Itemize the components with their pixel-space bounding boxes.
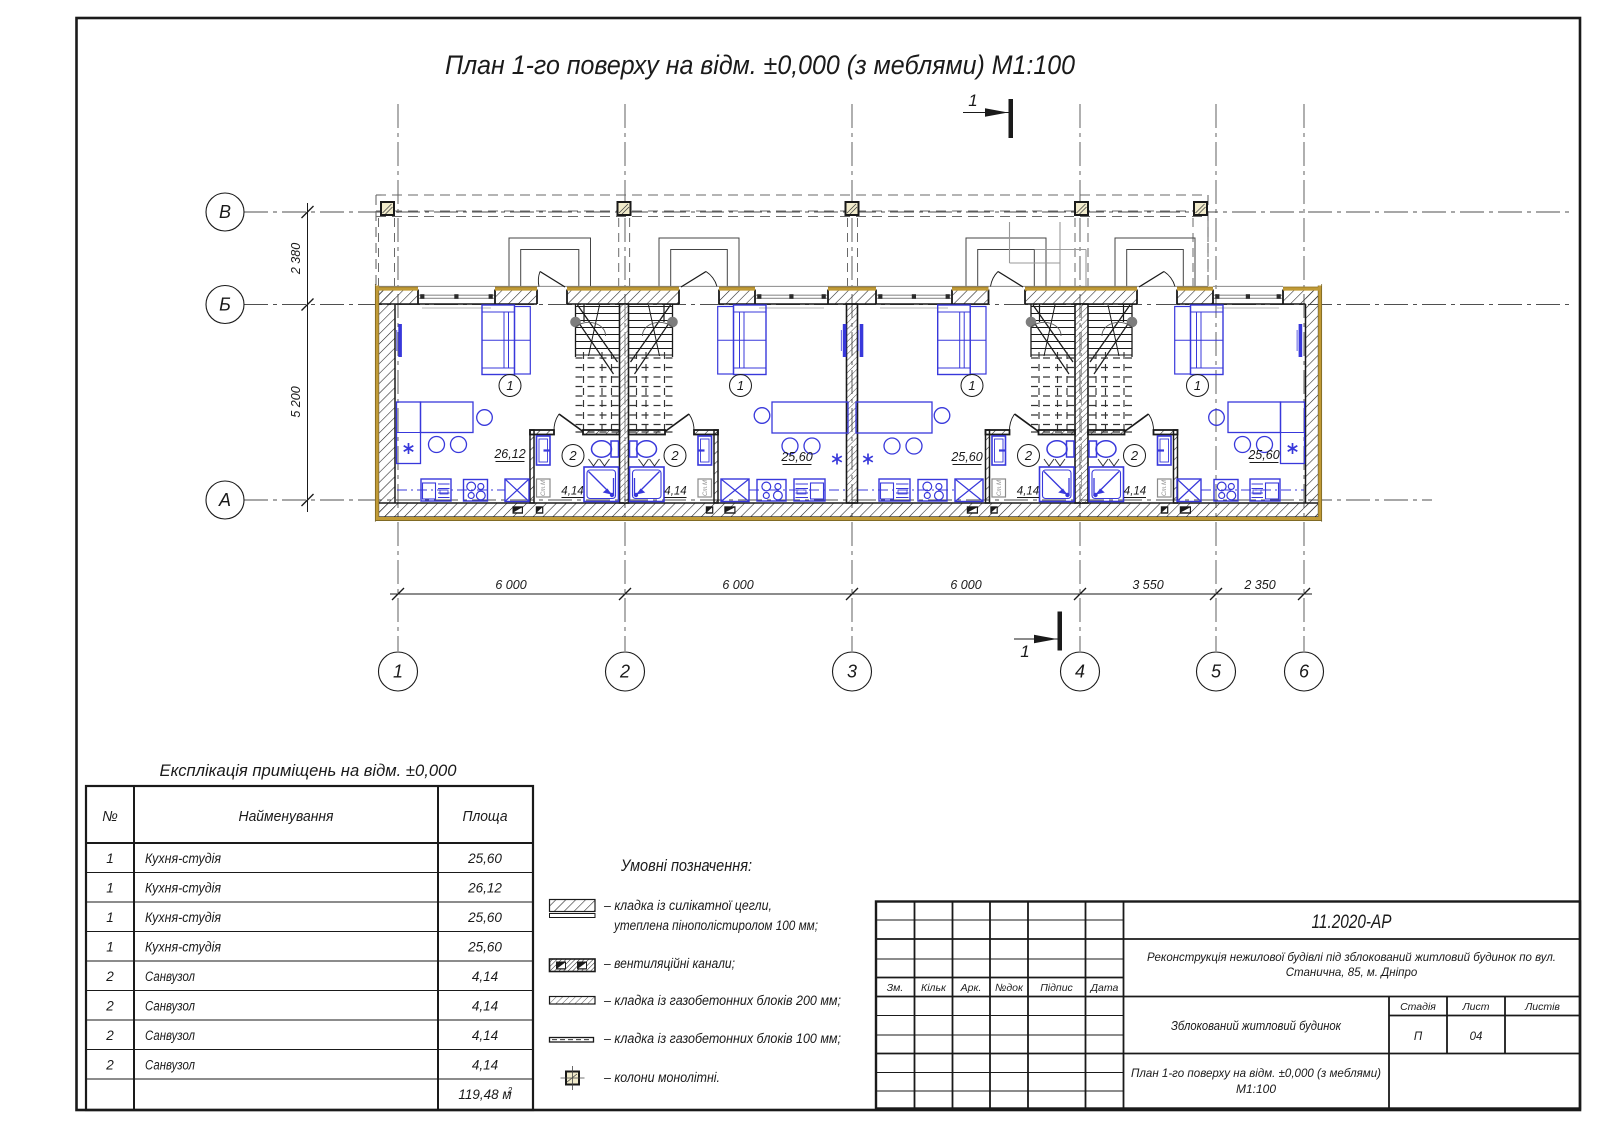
svg-text:Б: Б xyxy=(219,295,231,315)
svg-text:П: П xyxy=(1414,1031,1423,1043)
svg-text:1: 1 xyxy=(106,851,114,866)
svg-text:2: 2 xyxy=(105,969,114,984)
svg-text:4,14: 4,14 xyxy=(1124,486,1146,498)
svg-text:2 380: 2 380 xyxy=(289,243,303,275)
svg-text:3 550: 3 550 xyxy=(1132,578,1163,592)
svg-text:6 000: 6 000 xyxy=(950,578,981,592)
svg-text:Листів: Листів xyxy=(1524,1001,1560,1013)
svg-text:Найменування: Найменування xyxy=(239,809,334,825)
svg-text:Ст.М: Ст.М xyxy=(1162,480,1168,496)
svg-text:Зм.: Зм. xyxy=(887,982,904,994)
svg-text:2: 2 xyxy=(670,448,679,463)
svg-text:1: 1 xyxy=(968,378,975,393)
svg-text:Кухня-студія: Кухня-студія xyxy=(145,910,221,925)
svg-text:04: 04 xyxy=(1470,1031,1483,1043)
svg-text:4,14: 4,14 xyxy=(561,486,583,498)
svg-text:Лист: Лист xyxy=(1461,1001,1489,1013)
svg-text:119,48 м: 119,48 м xyxy=(458,1087,511,1102)
svg-text:2 350: 2 350 xyxy=(1243,578,1275,592)
svg-text:25,60: 25,60 xyxy=(467,910,502,925)
svg-text:4,14: 4,14 xyxy=(472,1028,498,1043)
svg-text:План 1-го поверху на відм. ±0,: План 1-го поверху на відм. ±0,000 (з меб… xyxy=(1131,1066,1381,1080)
svg-text:Експлікація приміщень на відм.: Експлікація приміщень на відм. ±0,000 xyxy=(160,761,458,780)
svg-text:– вентиляційні канали;: – вентиляційні канали; xyxy=(603,956,735,971)
svg-text:Дата: Дата xyxy=(1090,982,1119,994)
svg-text:6 000: 6 000 xyxy=(722,578,753,592)
svg-text:4,14: 4,14 xyxy=(664,486,686,498)
svg-text:Кухня-студія: Кухня-студія xyxy=(145,881,221,896)
svg-text:26,12: 26,12 xyxy=(493,447,525,461)
svg-text:2: 2 xyxy=(568,448,577,463)
svg-text:Площа: Площа xyxy=(463,809,508,825)
svg-text:1: 1 xyxy=(506,378,513,393)
svg-text:2: 2 xyxy=(105,999,114,1014)
svg-text:4,14: 4,14 xyxy=(472,999,498,1014)
svg-text:Стадія: Стадія xyxy=(1400,1001,1436,1013)
svg-text:Підпис: Підпис xyxy=(1040,982,1073,994)
svg-text:25,60: 25,60 xyxy=(780,450,812,464)
svg-text:Реконструкція нежилової будівл: Реконструкція нежилової будівлі під збло… xyxy=(1147,952,1556,964)
svg-text:2: 2 xyxy=(1024,448,1033,463)
svg-text:1: 1 xyxy=(1020,642,1029,661)
svg-text:4,14: 4,14 xyxy=(1017,486,1039,498)
svg-text:– кладка із силікатної цегли,: – кладка із силікатної цегли, xyxy=(603,898,772,913)
svg-text:утеплена пінополістиролом 100: утеплена пінополістиролом 100 мм; xyxy=(613,918,818,933)
svg-text:1: 1 xyxy=(106,940,114,955)
svg-text:№док: №док xyxy=(995,982,1024,994)
svg-text:Умовні позначення:: Умовні позначення: xyxy=(620,857,752,875)
svg-text:4,14: 4,14 xyxy=(472,1058,498,1073)
svg-text:25,60: 25,60 xyxy=(1247,448,1279,462)
svg-text:25,60: 25,60 xyxy=(950,450,982,464)
svg-text:– колони монолітні.: – колони монолітні. xyxy=(603,1070,720,1085)
svg-text:3: 3 xyxy=(847,662,857,682)
svg-text:В: В xyxy=(219,202,231,222)
svg-text:Ст.М: Ст.М xyxy=(997,480,1003,496)
svg-text:1: 1 xyxy=(968,91,977,110)
svg-text:25,60: 25,60 xyxy=(467,851,502,866)
svg-text:2: 2 xyxy=(105,1028,114,1043)
svg-text:1: 1 xyxy=(393,662,403,682)
svg-text:6: 6 xyxy=(1299,662,1310,682)
svg-text:1: 1 xyxy=(106,910,114,925)
svg-text:2: 2 xyxy=(619,662,630,682)
svg-text:Санвузол: Санвузол xyxy=(145,999,195,1014)
svg-text:Ст.М: Ст.М xyxy=(703,480,709,496)
svg-text:Кільк: Кільк xyxy=(921,982,947,994)
svg-text:Кухня-студія: Кухня-студія xyxy=(145,851,221,866)
svg-text:5: 5 xyxy=(1211,662,1222,682)
svg-text:Кухня-студія: Кухня-студія xyxy=(145,940,221,955)
svg-text:– кладка із газобетонних блокі: – кладка із газобетонних блоків 200 мм; xyxy=(603,993,841,1008)
svg-text:Санвузол: Санвузол xyxy=(145,969,195,984)
svg-text:Ст.М: Ст.М xyxy=(541,480,547,496)
svg-text:5 200: 5 200 xyxy=(289,386,303,417)
svg-text:4,14: 4,14 xyxy=(472,969,498,984)
svg-text:26,12: 26,12 xyxy=(467,881,502,896)
svg-text:1: 1 xyxy=(1194,378,1201,393)
svg-text:А: А xyxy=(218,490,231,510)
svg-text:2: 2 xyxy=(1130,448,1139,463)
svg-text:6 000: 6 000 xyxy=(495,578,526,592)
svg-text:Станична, 85, м. Дніпро: Станична, 85, м. Дніпро xyxy=(1286,967,1418,979)
svg-text:1: 1 xyxy=(106,881,114,896)
svg-text:Зблокований житловий будинок: Зблокований житловий будинок xyxy=(1171,1018,1342,1033)
svg-text:План 1-го поверху на відм. ±0,: План 1-го поверху на відм. ±0,000 (з меб… xyxy=(445,50,1075,80)
svg-text:4: 4 xyxy=(1075,662,1085,682)
svg-text:25,60: 25,60 xyxy=(467,940,502,955)
svg-text:Санвузол: Санвузол xyxy=(145,1028,195,1043)
svg-text:Арк.: Арк. xyxy=(960,982,982,994)
svg-text:2: 2 xyxy=(105,1058,114,1073)
svg-text:– кладка із газобетонних блокі: – кладка із газобетонних блоків 100 мм; xyxy=(603,1031,841,1046)
svg-text:1: 1 xyxy=(737,378,744,393)
svg-text:11.2020-АР: 11.2020-АР xyxy=(1312,912,1392,933)
svg-text:М1:100: М1:100 xyxy=(1236,1082,1276,1096)
svg-text:Санвузол: Санвузол xyxy=(145,1058,195,1073)
svg-text:2: 2 xyxy=(507,1086,513,1095)
svg-text:№: № xyxy=(102,809,118,825)
